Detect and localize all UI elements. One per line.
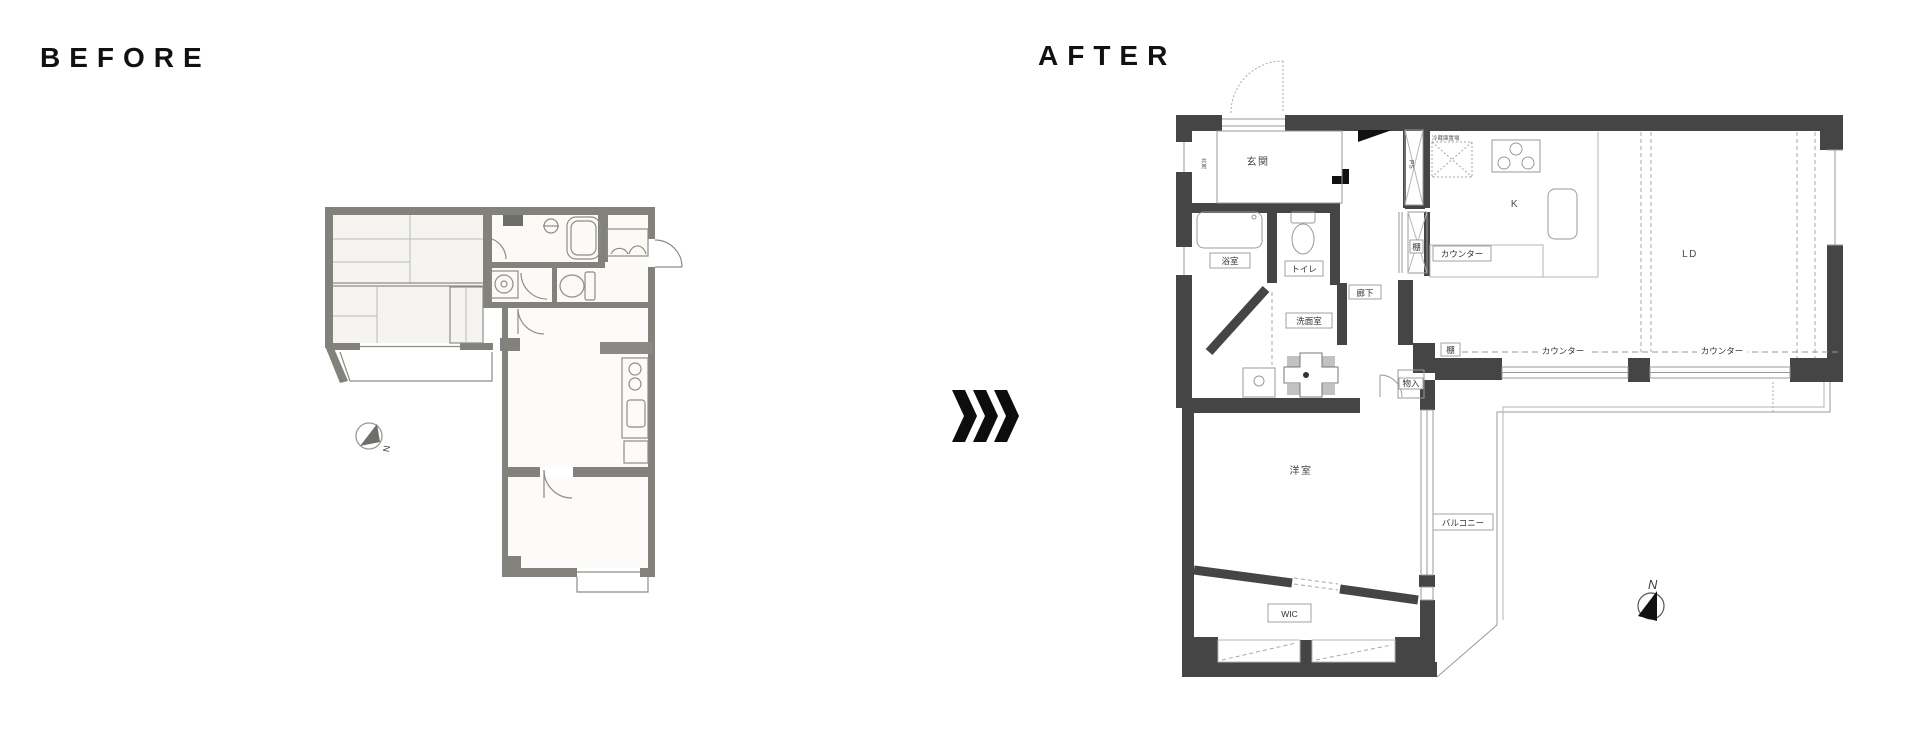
entry-door-arc	[655, 240, 682, 267]
kitchen-label: K	[1511, 199, 1519, 210]
kitchen-shelf	[600, 342, 653, 354]
compass-north-label: N	[381, 445, 392, 453]
balcony-label: バルコニー	[1442, 518, 1484, 528]
before-floorplan: N	[315, 195, 700, 610]
after-floorplan: 玄関 共用 浴室 トイレ 洗面室 廊	[1170, 40, 1860, 690]
toilet-tank	[1291, 212, 1315, 223]
toilet-bowl	[1292, 224, 1314, 254]
counter-kitchen-label: カウンター	[1441, 249, 1484, 259]
entry-door-arc	[1231, 61, 1283, 113]
before-after-floorplan-page: BEFORE AFTER	[0, 0, 1920, 754]
window	[1421, 587, 1433, 600]
after-balcony: バルコニー	[1421, 382, 1830, 677]
before-balcony-bottom	[577, 577, 648, 592]
triple-chevron-icon	[945, 383, 1025, 448]
faucet-dot	[1303, 372, 1309, 378]
washing-machine	[1243, 368, 1275, 397]
compass-needle	[360, 424, 380, 446]
after-walls	[1176, 115, 1843, 677]
entry-step-wedge	[1358, 130, 1392, 142]
counter-ld-right-label: カウンター	[1701, 346, 1744, 356]
after-entrance: 玄関 共用	[1200, 61, 1342, 203]
after-title: AFTER	[1038, 40, 1176, 72]
compass-needle	[1638, 591, 1657, 621]
washroom-label: 洗面室	[1296, 316, 1322, 326]
common-use-label: 共用	[1200, 157, 1207, 171]
toilet-label: トイレ	[1291, 264, 1317, 274]
before-title: BEFORE	[40, 42, 211, 74]
wic-label: WIC	[1281, 609, 1298, 619]
entrance-label: 玄関	[1247, 155, 1270, 168]
fridge-space-label: 冷蔵庫置場	[1432, 134, 1460, 142]
bathroom-label: 浴室	[1221, 256, 1239, 266]
counter-ld-left-label: カウンター	[1542, 346, 1585, 356]
living-dining-label: LD	[1682, 249, 1698, 260]
shelf-ld-label: 棚	[1446, 345, 1455, 355]
before-balcony-top	[340, 352, 492, 381]
western-room-label: 洋室	[1290, 464, 1313, 477]
after-western-room: 洋室 WIC	[1218, 464, 1395, 662]
wall-notch	[503, 215, 523, 226]
genkan-floor	[1217, 131, 1342, 203]
before-compass: N	[356, 423, 392, 453]
after-compass: N	[1638, 577, 1664, 621]
kitchen-sink	[1548, 189, 1577, 239]
pipe-space-label: PS	[1408, 160, 1415, 169]
after-bathroom: 浴室 トイレ	[1197, 212, 1323, 276]
shelf-kitchen-label: 棚	[1412, 242, 1421, 252]
storage-label: 物入	[1402, 379, 1420, 389]
compass-north-label: N	[1648, 577, 1658, 592]
step-mark	[1332, 176, 1349, 184]
hallway-label: 廊下	[1356, 288, 1374, 298]
after-washroom: 洗面室	[1243, 292, 1338, 397]
